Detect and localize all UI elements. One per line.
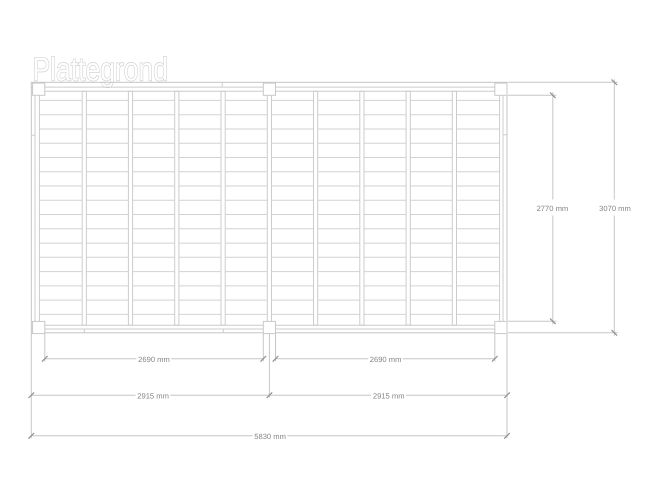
svg-text:2690 mm: 2690 mm [138,355,170,364]
svg-text:2770 mm: 2770 mm [537,204,569,213]
svg-text:3070 mm: 3070 mm [599,204,631,213]
svg-text:2915 mm: 2915 mm [137,392,169,401]
svg-text:2915 mm: 2915 mm [373,392,405,401]
svg-text:5830 mm: 5830 mm [254,432,286,441]
svg-text:2690 mm: 2690 mm [370,355,402,364]
